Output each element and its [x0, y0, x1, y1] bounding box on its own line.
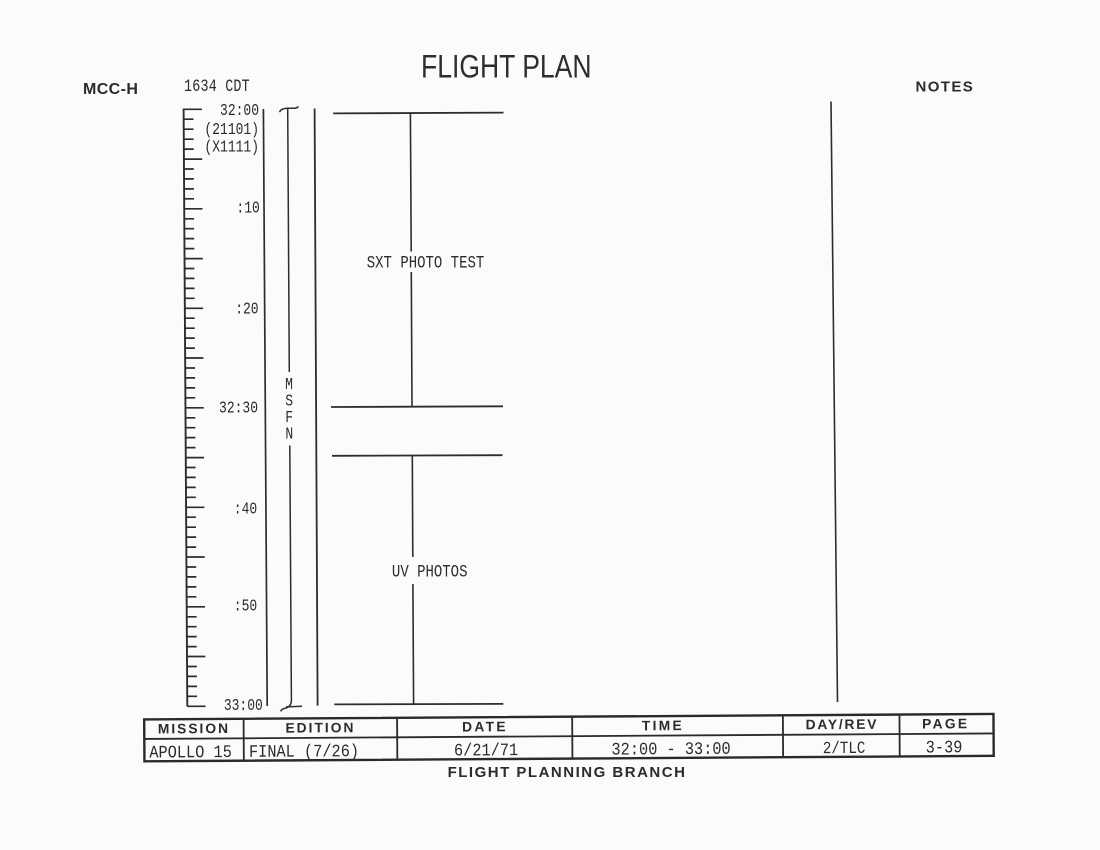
svg-text:3-39: 3-39: [926, 737, 963, 758]
svg-text:FLIGHT PLANNING BRANCH: FLIGHT PLANNING BRANCH: [448, 764, 687, 781]
svg-text:FINAL (7/26): FINAL (7/26): [249, 741, 359, 762]
svg-text::50: :50: [234, 596, 257, 616]
svg-text:EDITION: EDITION: [285, 720, 355, 735]
svg-text:1634 CDT: 1634 CDT: [184, 76, 250, 96]
svg-text:SXT PHOTO TEST: SXT PHOTO TEST: [367, 253, 485, 273]
svg-text:6/21/71: 6/21/71: [454, 740, 518, 761]
svg-text:APOLLO 15: APOLLO 15: [149, 742, 232, 763]
svg-text:32:00 - 33:00: 32:00 - 33:00: [611, 739, 730, 760]
svg-text:(X1111): (X1111): [204, 137, 259, 157]
svg-text:PAGE: PAGE: [922, 716, 969, 731]
svg-text:DATE: DATE: [462, 719, 508, 734]
svg-text:MCC-H: MCC-H: [83, 81, 138, 98]
svg-text::10: :10: [236, 198, 259, 218]
svg-text:UV PHOTOS: UV PHOTOS: [392, 562, 468, 582]
svg-text:TIME: TIME: [642, 718, 684, 733]
svg-text:MISSION: MISSION: [158, 721, 230, 736]
svg-text:32:00: 32:00: [220, 100, 259, 120]
svg-text:32:30: 32:30: [219, 398, 258, 418]
svg-text:FLIGHT PLAN: FLIGHT PLAN: [421, 49, 592, 85]
svg-text::40: :40: [234, 499, 257, 519]
svg-text:33:00: 33:00: [224, 696, 263, 716]
svg-text:S: S: [285, 393, 293, 411]
svg-text:DAY/REV: DAY/REV: [806, 717, 879, 732]
svg-text:N: N: [285, 426, 293, 444]
svg-text:M: M: [285, 377, 293, 395]
svg-text:F: F: [285, 410, 293, 428]
svg-text::20: :20: [235, 299, 258, 319]
svg-text:NOTES: NOTES: [916, 79, 975, 96]
svg-text:2/TLC: 2/TLC: [823, 739, 866, 759]
